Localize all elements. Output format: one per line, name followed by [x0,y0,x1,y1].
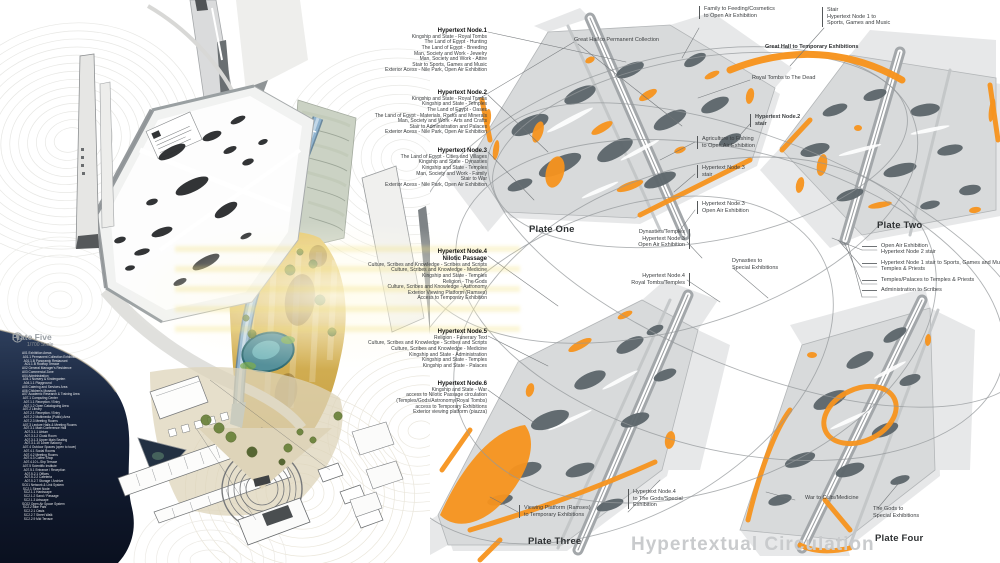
presentation-board: Plate Five 1/700 Scale A01 Exhibition Ar… [0,0,1000,563]
text-line: Special Exhibitions [732,265,778,272]
text-line: Hypertext Node.3 [613,236,685,243]
text-line: to The Gods/Special [633,496,683,503]
text-line: Sports, Games and Music [827,20,890,27]
text-line: Exterior viewing platform (piazza) [277,410,487,416]
node-2-block: Hypertext Node.2Kingship and State - Roy… [277,90,487,136]
callout-node3-open-air: Hypertext Node.3Open Air Exhibition [697,201,749,214]
node-5-block: Hypertext Node.5Religion - Funerary Text… [277,329,487,369]
text-line: SC2.2.9 Mid Terrace [22,518,162,522]
legend-list: A01 Exhibition Areas A01.1 Permanent Col… [22,352,162,521]
text-line: to Open Air Exhibition [704,13,775,20]
text-line: Access to Temporary Exhibition [277,296,487,302]
text-line: Dynasties to [732,258,778,265]
text-line: Royal Tombs to The Dead [752,75,815,82]
route-item: Temples/Palaces to Temples & Priests [881,277,1000,283]
text-line: Exhibition [633,502,683,509]
node-title: Hypertext Node.4 [277,249,487,256]
text-line: Stair [827,7,890,14]
callout-royal-tombs-dead: Royal Tombs to The Dead [752,75,815,82]
route-item: Administration to Scribes [881,287,1000,293]
plate-one-label: Plate One [529,224,575,235]
text-line: Exterior Acess - Nile Park, Open Air Exh… [277,68,487,74]
compass-icon [12,332,23,343]
plate-four-label: Plate Four [875,533,923,544]
callout-agriculture-fishing: Agriculture to Fishingto Open Air Exhibi… [697,136,755,149]
text-line: War to Cults/Medicine [805,495,859,502]
text-line: Temples & Priests [881,266,1000,272]
text-line: Dynasties/Temples [613,229,685,236]
route-item: Hypertext Node 1 stair to Sports, Games … [881,260,1000,273]
callout-node3-stair: Hypertext Node.3stair [697,165,745,178]
callout-node4-royal-tombs: Hypertext Node.4Royal Tombs/Temples [610,273,690,286]
callout-node4-gods: Hypertext Node.4to The Gods/SpecialExhib… [628,489,683,509]
text-line: Hypertext Node.3 [702,201,749,208]
plate-two-route-list: Open Air ExhibitionHypertext Node 2 stai… [881,243,1000,298]
text-line: Hypertext Node.4 [610,273,685,280]
text-line: to Open Air Exhibition [702,143,755,150]
text-line: The Gods to [873,506,919,513]
board-title: Hypertextual Circulation [631,534,875,556]
text-line: Temples/Palaces to Temples & Priests [881,277,1000,283]
callout-family-feeding: Family to Feeding/Cosmeticsto Open Air E… [699,6,775,19]
callout-viewing-platform: Viewing Platform (Ramses)to Temporary Ex… [519,505,591,518]
plate-five-scale: 1/700 Scale [27,342,162,348]
text-line: Exterior Acess - Nile Park, Open Air Exh… [277,130,487,136]
node-1-block: Hypertext Node.1Kingship and State - Roy… [277,28,487,74]
callout-great-hall-temporary: Great Hall to Temporary Exhibitions [765,44,858,51]
node-3-block: Hypertext Node.3The Land of Egypt - Citi… [277,148,487,188]
text-line: Royal Tombs/Temples [610,280,685,287]
text-line: Open Air Exhibition [702,208,749,215]
text-line: Hypertext Node 2 stair [881,249,1000,255]
callout-great-hall-permanent: Great Hall to Permanent Collection [574,37,659,44]
callout-stair-node1: StairHypertext Node 1 toSports, Games an… [822,7,890,27]
text-line: Hypertext Node.2 [755,114,800,121]
text-line: Agriculture to Fishing [702,136,755,143]
callout-war-cults: War to Cults/Medicine [805,495,859,502]
plate-three-label: Plate Three [528,536,581,547]
node-6-block: Hypertext Node.6Kingship and State - War… [277,381,487,416]
text-line: Hypertext Node.3 [702,165,745,172]
text-line: stair [755,121,800,128]
text-line: Viewing Platform (Ramses) [524,505,591,512]
text-line: to Temporary Exhibitions [524,512,591,519]
plate-two-label: Plate Two [877,220,922,231]
text-line: Great Hall to Temporary Exhibitions [765,44,858,51]
callout-gods-special: The Gods toSpecial Exhibitions [873,506,919,519]
callout-dynasties-temples-node3: Dynasties/TemplesHypertext Node.3Open Ai… [613,229,690,249]
text-line: Exterior Acess - Nile Park, Open Air Exh… [277,183,487,189]
text-line: Hypertext Node.4 [633,489,683,496]
text-line: Administration to Scribes [881,287,1000,293]
text-line: Special Exhibitions [873,513,919,520]
callout-node2-stair: Hypertext Node.2stair [750,114,800,127]
text-line: Open Air Exhibition [613,242,685,249]
callout-dynasties-special: Dynasties toSpecial Exhibitions [732,258,778,271]
text-line: Kingship and State - Palaces [277,364,487,370]
text-line: Great Hall to Permanent Collection [574,37,659,44]
text-line: stair [702,172,745,179]
plate-five-legend: Plate Five 1/700 Scale A01 Exhibition Ar… [12,332,162,521]
route-item: Open Air ExhibitionHypertext Node 2 stai… [881,243,1000,256]
text-line: Family to Feeding/Cosmetics [704,6,775,13]
text-line: Hypertext Node 1 to [827,14,890,21]
node-4-block: Hypertext Node.4Nilotic PassageCulture, … [277,249,487,302]
